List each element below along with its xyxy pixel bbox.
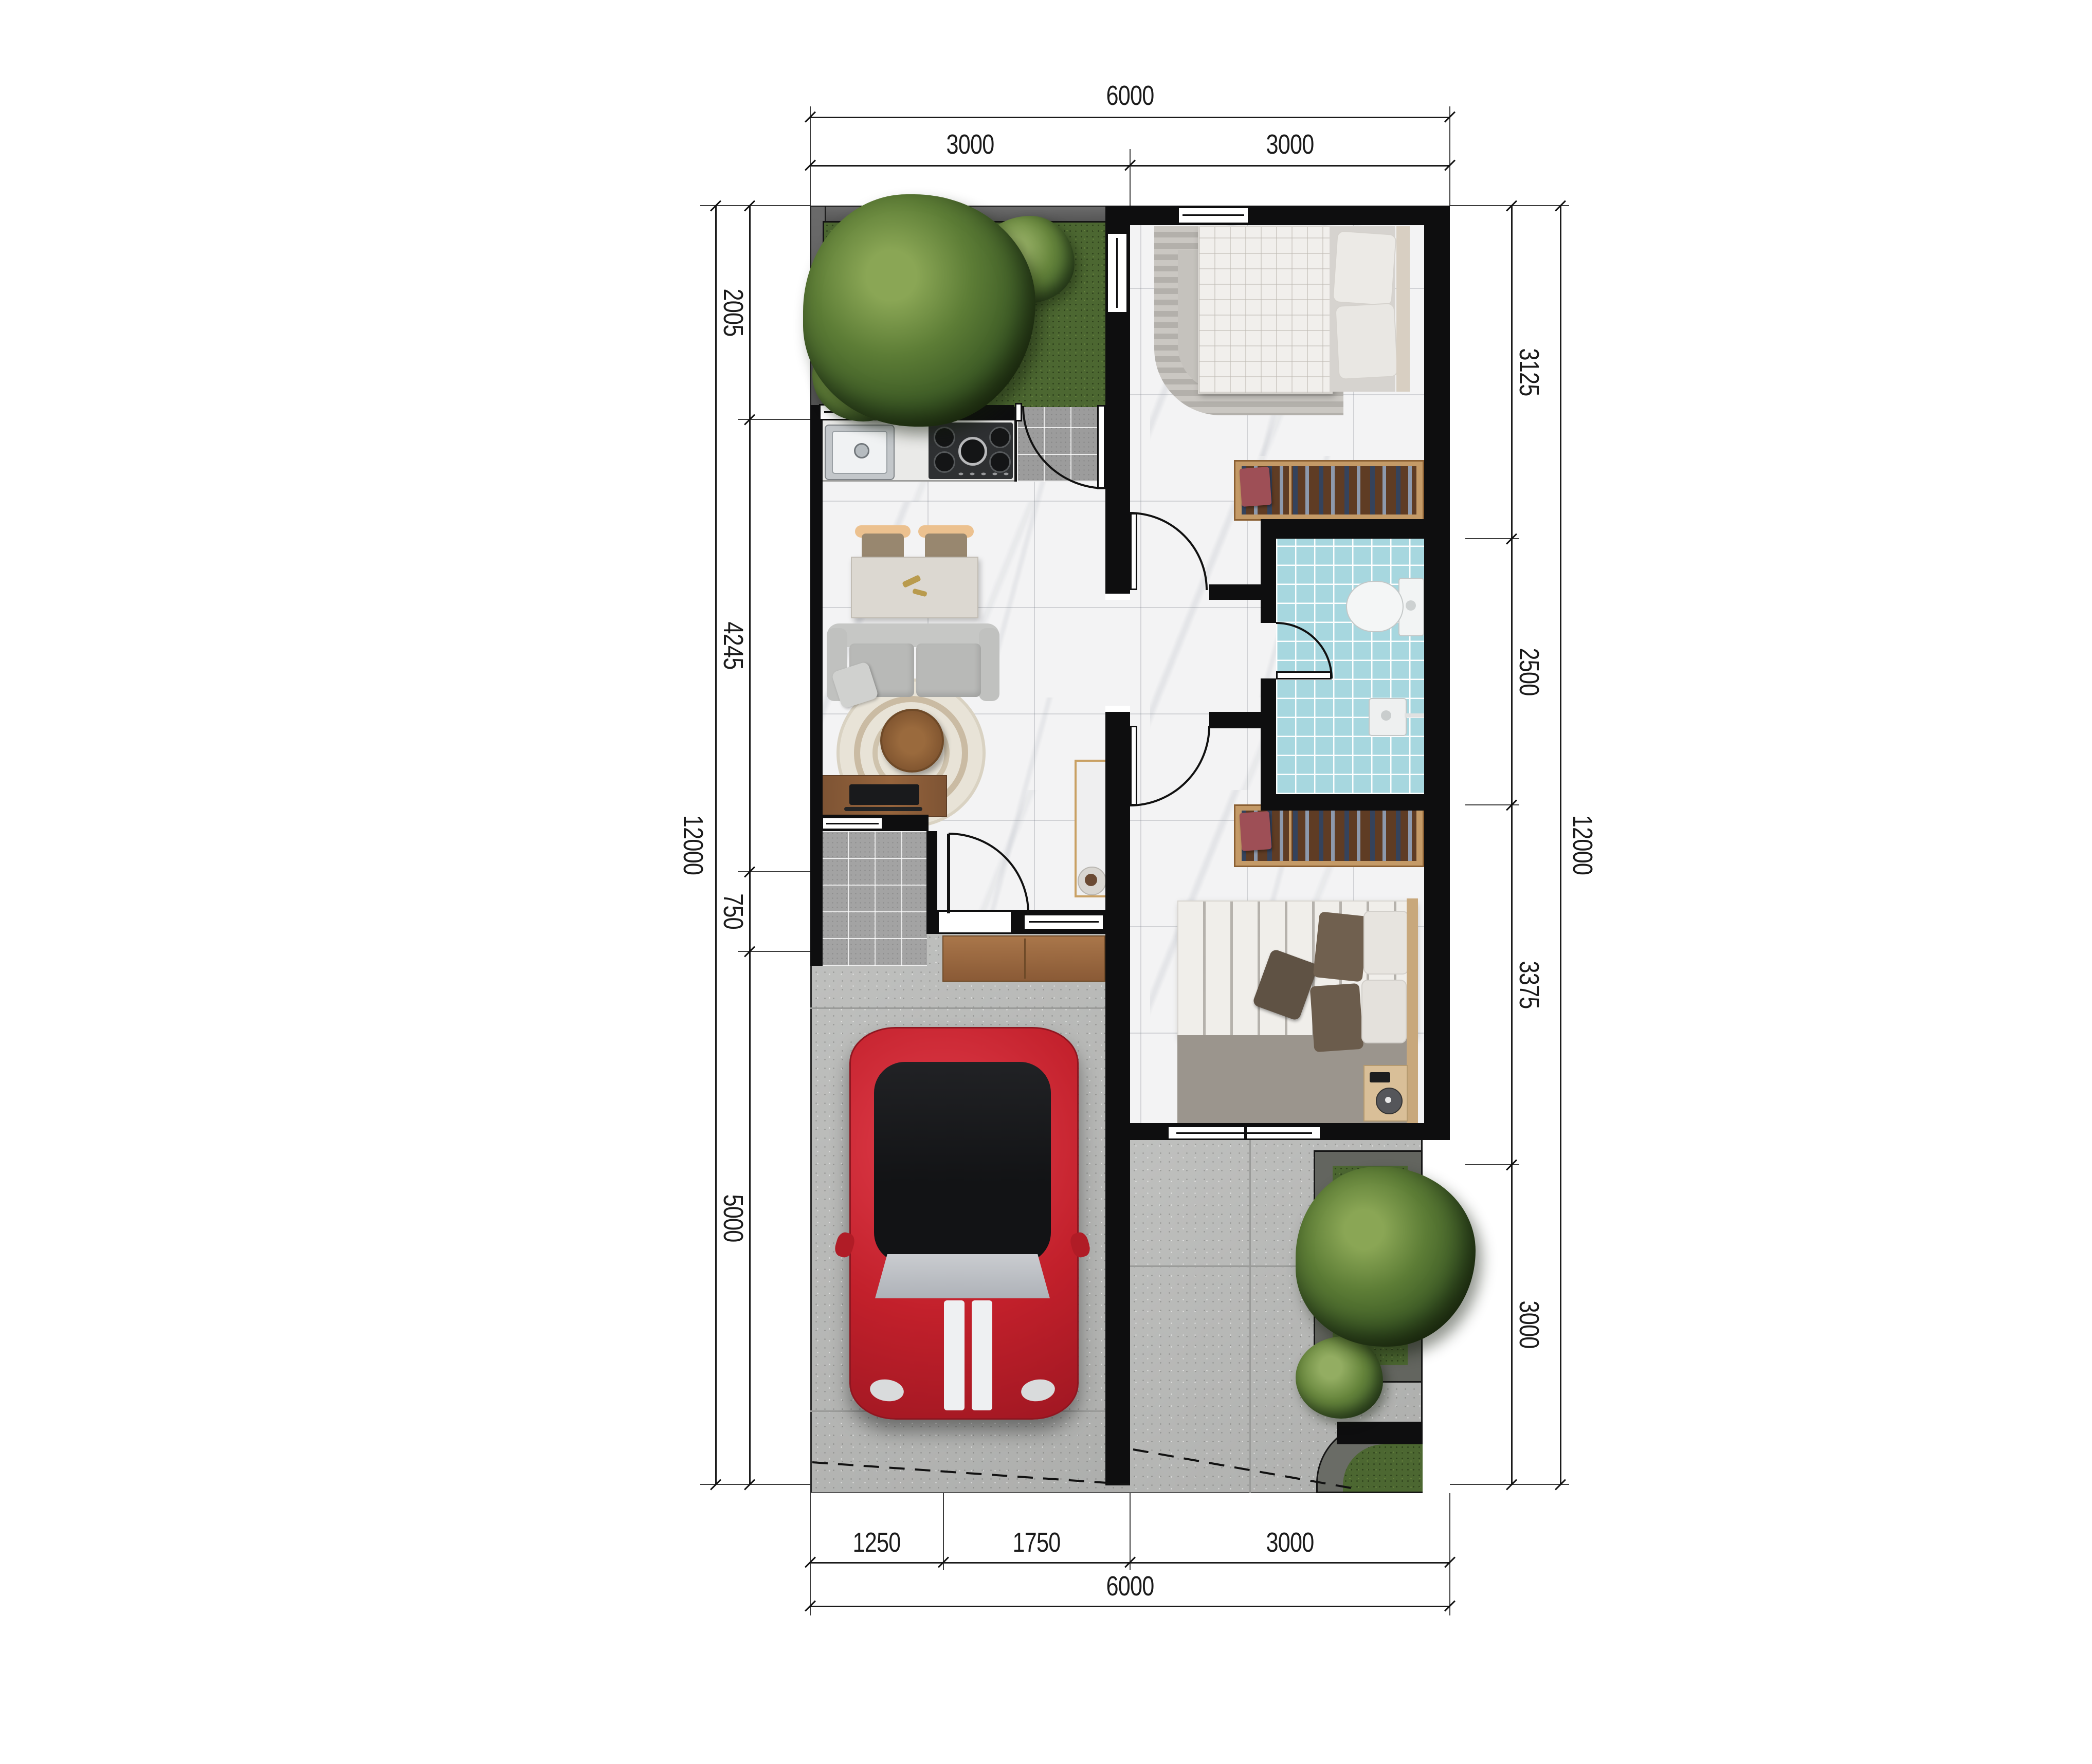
driveway-dashed-line (1133, 1449, 1360, 1490)
driveway-dashed-line (812, 1462, 1129, 1484)
terrace-tree (1296, 1167, 1476, 1347)
bathroom-door-arc (1276, 623, 1332, 678)
entry-door-arc (949, 834, 1028, 913)
bedroom1-door-arc (1130, 513, 1207, 590)
floor-plan-canvas: 6000 3000 3000 1250 1750 3000 6000 2005 (0, 0, 2092, 1764)
bedroom2-door-arc (1130, 726, 1209, 805)
back-door-arc (1023, 406, 1105, 488)
garden-tree (803, 194, 1035, 427)
terrace-bush (1296, 1336, 1383, 1419)
